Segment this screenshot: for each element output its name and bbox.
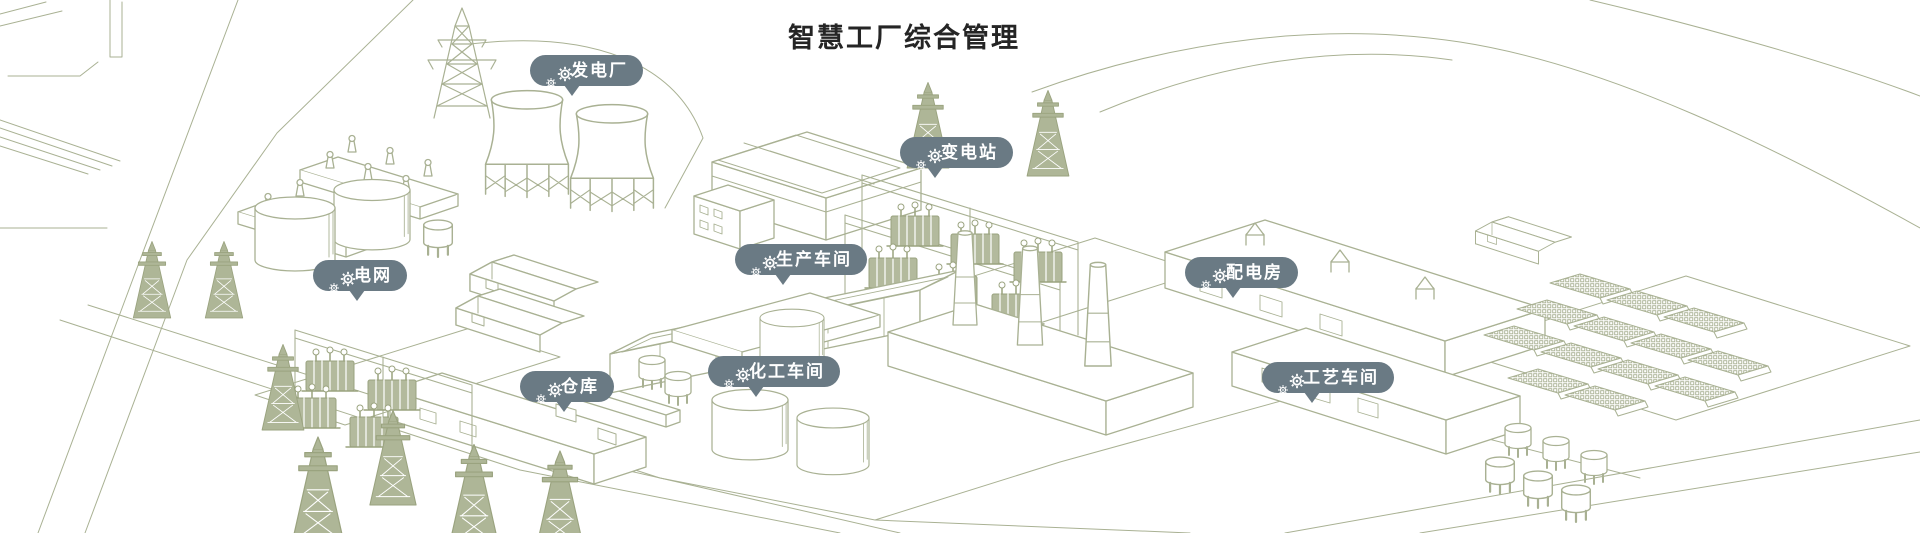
- marker-label: 配电房: [1226, 264, 1283, 281]
- solar-panel-field: [1484, 274, 1771, 416]
- marker-label: 电网: [354, 267, 392, 284]
- factory-campus-illustration: [0, 0, 1920, 533]
- gears-icon: [541, 59, 565, 83]
- marker-substation[interactable]: 变电站: [900, 137, 1013, 168]
- marker-label: 化工车间: [749, 363, 825, 380]
- marker-label: 工艺车间: [1303, 369, 1379, 386]
- marker-label: 生产车间: [776, 251, 852, 268]
- smart-factory-dashboard: 智慧工厂综合管理 发电厂 变电站 电网 生产车间: [0, 0, 1920, 533]
- marker-distribution-room[interactable]: 配电房: [1185, 257, 1298, 288]
- marker-production-workshop[interactable]: 生产车间: [735, 244, 867, 275]
- gears-icon: [1273, 366, 1297, 390]
- marker-warehouse[interactable]: 仓库: [520, 371, 614, 402]
- gears-icon: [746, 248, 770, 272]
- gears-icon: [324, 264, 348, 288]
- page-title: 智慧工厂综合管理: [788, 16, 1020, 55]
- gears-icon: [531, 375, 555, 399]
- gable-sheds: [456, 255, 598, 352]
- gears-icon: [1196, 261, 1220, 285]
- marker-process-workshop[interactable]: 工艺车间: [1262, 362, 1394, 393]
- marker-power-plant[interactable]: 发电厂: [530, 55, 643, 86]
- marker-power-grid[interactable]: 电网: [313, 260, 407, 291]
- gears-icon: [719, 360, 743, 384]
- power-plant-cooling-towers: [486, 91, 654, 212]
- marker-label: 变电站: [941, 144, 998, 161]
- marker-chemical-workshop[interactable]: 化工车间: [708, 356, 840, 387]
- gears-icon: [911, 141, 935, 165]
- transmission-tower-tall: [428, 8, 496, 118]
- marker-label: 仓库: [561, 378, 599, 395]
- marker-label: 发电厂: [571, 62, 628, 79]
